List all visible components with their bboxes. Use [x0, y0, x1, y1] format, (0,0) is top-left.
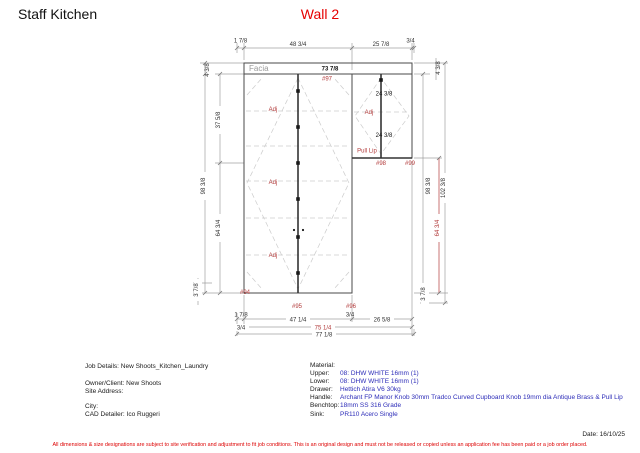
top-offset-left-dim: 1 7/8: [234, 39, 248, 45]
facia-label: Facia: [249, 64, 269, 73]
hinge-markers: [293, 78, 383, 275]
elevation-drawing: Facia 73 7/8 1 7/8 48 3/4 25 7/8 3/4 4 3…: [0, 0, 640, 360]
facia-height-left-dim: 4 3/8: [205, 63, 211, 77]
material-row-upper: Upper: 08: DHW WHITE 16mm (1): [310, 370, 632, 377]
material-row-lower: Lower: 08: DHW WHITE 16mm (1): [310, 378, 632, 385]
kick-height-right-dim: 3 7/8: [421, 287, 427, 301]
upper-height-left-dim: 37 5/8: [216, 111, 222, 128]
bottom-width-right-dim: 26 5/8: [374, 318, 391, 324]
material-value: 08: DHW WHITE 16mm (1): [340, 378, 628, 385]
total-height-right-dim: 98 3/8: [426, 177, 432, 194]
item-98-label: #98: [376, 161, 387, 167]
material-label: Upper:: [310, 370, 340, 377]
material-label: Benchtop:: [310, 402, 340, 409]
total-height-left-dim: 98 3/8: [201, 177, 207, 194]
material-title: Material:: [310, 362, 340, 369]
material-value: PR110 Acero Single: [340, 411, 628, 418]
lower-height-right-dim: 64 3/4: [435, 219, 441, 236]
job-details: Job Details: New Shoots_Kitchen_Laundry: [85, 363, 208, 370]
date-label: Date: 16/10/25: [582, 431, 625, 438]
adj-shelf-label-right: Adj: [365, 110, 374, 116]
adj-shelf-label-1: Adj: [269, 107, 278, 113]
item-94-label: #94: [240, 290, 251, 296]
facia-height-right-dim: 4 3/8: [436, 61, 442, 75]
disclaimer-text: All dimensions & size designations are s…: [0, 442, 640, 448]
item-96-label: #96: [346, 304, 357, 310]
kick-height-left-dim: 3 7/8: [194, 283, 200, 297]
bottom-offset-mid-dim: 3/4: [346, 313, 355, 319]
bottom-width-red-dim: 75 1/4: [315, 326, 332, 332]
top-offset-right-dim: 3/4: [406, 39, 415, 45]
site-address: Site Address:: [85, 388, 123, 395]
material-value: 08: DHW WHITE 16mm (1): [340, 370, 628, 377]
owner-client: Owner/Client: New Shoots: [85, 380, 161, 387]
door-width-top-dim: 24 3/8: [376, 92, 393, 98]
material-row-handle: Handle: Archant FP Manor Knob 30mm Tradc…: [310, 394, 632, 401]
bottom-width-total-dim: 77 1/8: [316, 333, 333, 339]
dimension-lines: [193, 43, 448, 336]
material-value: Archant FP Manor Knob 30mm Tradco Curved…: [340, 394, 628, 401]
top-width-left-dim: 48 3/4: [290, 42, 307, 48]
dimension-text-backgrounds: [194, 106, 449, 338]
pull-lip-label: Pull Lip: [357, 149, 377, 155]
material-title-row: Material:: [310, 362, 632, 369]
material-block: Material: Upper: 08: DHW WHITE 16mm (1) …: [310, 362, 632, 419]
bottom-width-left-dim: 47 1/4: [290, 318, 307, 324]
overall-height-right-dim: 102 3/8: [441, 177, 447, 198]
material-label: Lower:: [310, 378, 340, 385]
item-95-label: #95: [292, 304, 303, 310]
bottom-offset-left2-dim: 3/4: [237, 326, 246, 332]
material-row-benchtop: Benchtop: 18mm SS 316 Grade: [310, 402, 632, 409]
top-width-right-dim: 25 7/8: [373, 42, 390, 48]
item-97-label: #97: [322, 77, 333, 83]
cad-detailer: CAD Detailer: Ico Ruggeri: [85, 411, 160, 418]
door-width-bottom-dim: 24 3/8: [376, 133, 393, 139]
item-99-label: #99: [405, 161, 416, 167]
material-value: 18mm SS 316 Grade: [340, 402, 628, 409]
material-label: Handle:: [310, 394, 340, 401]
upper-right-cabinet: [352, 74, 412, 158]
material-label: Drawer:: [310, 386, 340, 393]
facia-width-dim: 73 7/8: [322, 67, 339, 73]
material-row-drawer: Drawer: Hettich Atira V6 30kg: [310, 386, 632, 393]
material-row-sink: Sink: PR110 Acero Single: [310, 411, 632, 418]
adj-shelf-label-3: Adj: [269, 253, 278, 259]
bottom-offset-left-dim: 1 7/8: [234, 313, 248, 319]
material-label: Sink:: [310, 411, 340, 418]
material-value: Hettich Atira V6 30kg: [340, 386, 628, 393]
adj-shelf-label-2: Adj: [269, 180, 278, 186]
lower-height-left-dim: 64 3/4: [216, 219, 222, 236]
city: City:: [85, 403, 98, 410]
